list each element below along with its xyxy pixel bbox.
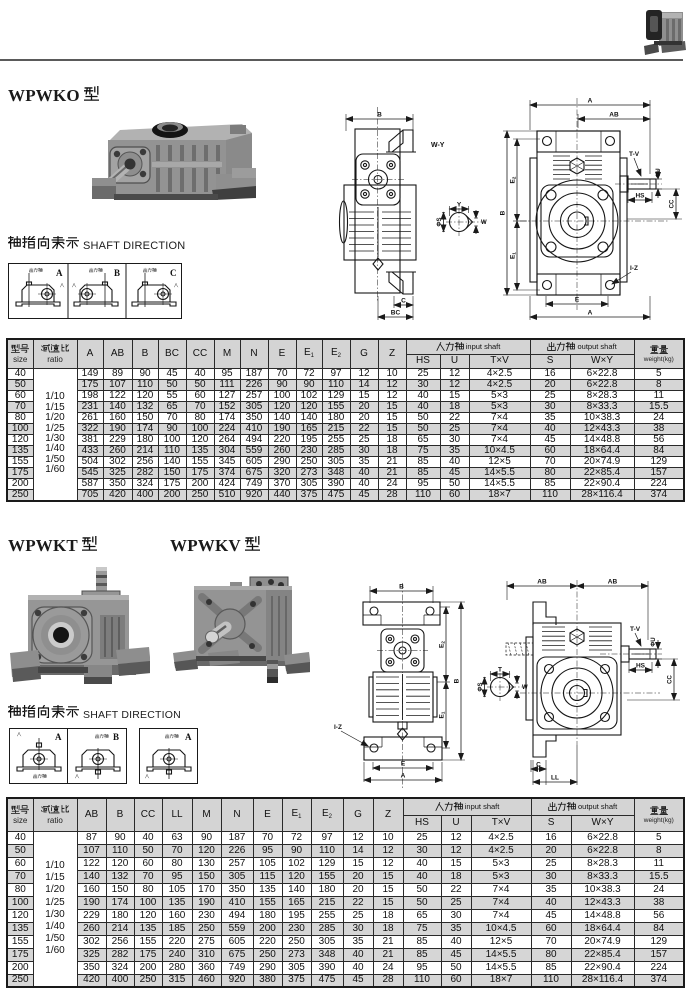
svg-text:B: B [114,268,120,278]
svg-text:E: E [575,297,580,304]
svg-text:A: A [55,732,62,742]
svg-text:A: A [185,732,192,742]
svg-text:E1: E1 [439,711,446,718]
svg-text:E2: E2 [510,176,517,183]
svg-text:CC: CC [668,675,674,684]
svg-text:W: W [481,220,487,226]
svg-text:T-V: T-V [629,151,640,158]
svg-text:E1: E1 [510,252,517,259]
svg-text:W-Y: W-Y [431,142,445,149]
svg-text:ΦU: ΦU [656,168,662,177]
svg-text:A: A [588,310,593,317]
svg-text:T: T [498,667,502,674]
svg-text:B: B [377,112,382,119]
svg-text:B: B [454,678,461,683]
svg-text:A: A [401,773,406,780]
svg-text:ΦS: ΦS [478,683,484,692]
svg-text:I-Z: I-Z [334,724,342,731]
svg-text:Y: Y [457,202,462,209]
svg-text:LL: LL [551,775,559,782]
svg-text:HS: HS [635,193,645,200]
svg-text:C: C [170,268,177,278]
svg-text:I-Z: I-Z [630,265,638,272]
svg-text:ΦU: ΦU [651,637,657,646]
svg-text:BC: BC [391,310,401,317]
svg-text:C: C [536,762,541,769]
svg-text:T-V: T-V [630,626,641,633]
svg-text:AB: AB [609,112,619,119]
svg-text:B: B [113,732,119,742]
svg-text:C: C [401,298,406,305]
svg-text:E: E [401,761,406,768]
svg-text:A: A [56,268,63,278]
svg-text:AB: AB [537,579,547,586]
svg-text:CC: CC [670,199,676,208]
svg-text:W: W [522,685,528,691]
svg-text:B: B [399,584,404,591]
svg-text:A: A [588,98,593,105]
svg-text:E2: E2 [439,641,446,648]
svg-text:HS: HS [636,663,646,670]
svg-text:B: B [500,210,507,215]
svg-text:AB: AB [608,579,618,586]
svg-text:ΦS: ΦS [437,218,443,227]
